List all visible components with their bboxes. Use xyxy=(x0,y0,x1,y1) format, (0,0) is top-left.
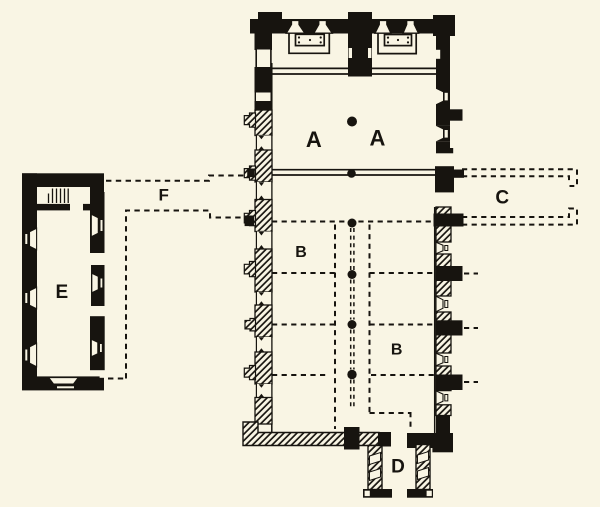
svg-text:C: C xyxy=(495,188,509,209)
svg-text:A: A xyxy=(370,126,386,151)
svg-text:E: E xyxy=(55,282,68,303)
svg-text:B: B xyxy=(391,342,403,359)
svg-text:F: F xyxy=(159,186,169,205)
svg-text:A: A xyxy=(306,127,322,152)
svg-text:B: B xyxy=(295,244,307,261)
svg-text:D: D xyxy=(391,457,405,478)
